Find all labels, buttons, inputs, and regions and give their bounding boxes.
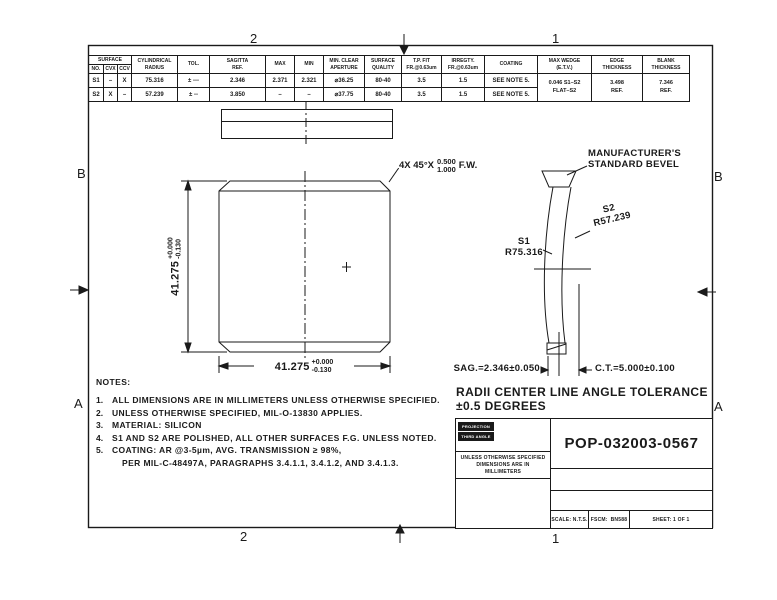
horizontal-dimension-text: 41.275 +0.000-0.130 (254, 359, 354, 374)
ct-dimension-text: C.T.=5.000±0.100 (595, 363, 675, 374)
col-header-radius: CYLINDRICALRADIUS (132, 56, 178, 74)
cell-sag-ref: 3.850 (210, 88, 266, 102)
cell-no: S1 (89, 74, 104, 88)
top-view (222, 101, 393, 147)
col-header-ccv: CCV (118, 65, 132, 74)
vertical-dimension-text: 41.275 +0.000-0.130 (168, 231, 183, 303)
col-header-quality: SURFACEQUALITY (365, 56, 402, 74)
col-header-edge-thickness: EDGETHICKNESS (592, 56, 643, 74)
title-block-empty-cell (455, 478, 551, 529)
col-group-surface: SURFACE (89, 56, 132, 65)
col-header-sagitta: SAGITTAREF. (210, 56, 266, 74)
uos-line: UNLESS OTHERWISE SPECIFIED (461, 455, 546, 462)
uos-cell: UNLESS OTHERWISE SPECIFIED DIMENSIONS AR… (455, 451, 551, 479)
cell-ccv: – (118, 88, 132, 102)
cell-tol: ± -- (178, 88, 210, 102)
front-view (219, 171, 390, 363)
surface-spec-table: SURFACE CYLINDRICALRADIUS TOL. SAGITTARE… (88, 55, 690, 102)
zone-label-bottom-1: 1 (552, 531, 559, 546)
cell-tp-fit: 3.5 (402, 74, 442, 88)
note-item-continuation: PER MIL-C-48497A, PARAGRAPHS 3.4.1.1, 3.… (96, 457, 441, 470)
sag-dimension-text: SAG.=2.346±0.050 (436, 363, 540, 374)
zone-arrow-left (70, 286, 88, 294)
note-item: 5. COATING: AR @3-5µm, AVG. TRANSMISSION… (96, 444, 441, 457)
notes-block: NOTES: 1. ALL DIMENSIONS ARE IN MILLIMET… (96, 377, 441, 469)
col-header-tol: TOL. (178, 56, 210, 74)
part-number-cell: POP-032003-0567 (550, 418, 713, 469)
fscm-cell: FSCM: BN588 (588, 510, 630, 529)
cell-max: – (266, 88, 295, 102)
cell-edge-thickness: 3.498REF. (592, 74, 643, 102)
col-header-no: NO. (89, 65, 104, 74)
cell-tol: ± --- (178, 74, 210, 88)
cell-quality: 80-40 (365, 88, 402, 102)
fscm-value: BN588 (611, 517, 628, 523)
sag-ct-arrows (541, 367, 592, 373)
engineering-drawing-sheet: 2 1 2 1 B A B A SURFACE CYLINDRICALRADIU… (0, 0, 777, 600)
bevel-label: MANUFACTURER'S STANDARD BEVEL (588, 148, 681, 170)
s2-leader (575, 231, 590, 238)
s1-leader (543, 250, 552, 254)
vertical-dimension (181, 181, 227, 352)
col-header-wedge: MAX WEDGE(E.T.V.) (538, 56, 592, 74)
note-item: 3. MATERIAL: SILICON (96, 419, 441, 432)
col-header-coating: COATING (485, 56, 538, 74)
col-header-max: MAX (266, 56, 295, 74)
zone-label-bottom-2: 2 (240, 529, 247, 544)
zone-label-top-2: 2 (250, 31, 257, 46)
zone-label-left-a: A (74, 396, 83, 411)
title-block-empty-row (550, 468, 713, 491)
cell-min: 2.321 (295, 74, 324, 88)
cell-max: 2.371 (266, 74, 295, 88)
uos-line: MILLIMETERS (485, 469, 521, 476)
cell-no: S2 (89, 88, 104, 102)
zone-label-left-b: B (77, 166, 86, 181)
cell-min: – (295, 88, 324, 102)
cell-coating: SEE NOTE 5. (485, 88, 538, 102)
cell-radius: 75.316 (132, 74, 178, 88)
chamfer-note: 4X 45°X 0.5001.000 F.W. (399, 158, 477, 174)
zone-label-right-a: A (714, 399, 723, 414)
scale-value: SCALE: N.T.S. (551, 517, 587, 523)
cell-coating: SEE NOTE 5. (485, 74, 538, 88)
uos-line: DIMENSIONS ARE IN (476, 462, 529, 469)
s1-radius-label: S1 R75.316 (504, 236, 544, 258)
col-header-irregularity: IRREGTY.FR.@0.63um (442, 56, 485, 74)
table-row-s1: S1 – X 75.316 ± --- 2.346 2.371 2.321 ⌀3… (89, 74, 690, 88)
zone-label-top-1: 1 (552, 31, 559, 46)
cell-irregularity: 1.5 (442, 74, 485, 88)
note-item: 1. ALL DIMENSIONS ARE IN MILLIMETERS UNL… (96, 394, 441, 407)
col-header-min: MIN (295, 56, 324, 74)
third-angle-chip: THIRD ANGLE (458, 432, 494, 441)
sheet-cell: SHEET: 1 OF 1 (629, 510, 713, 529)
cell-blank-thickness: 7.346REF. (643, 74, 690, 102)
zone-label-right-b: B (714, 169, 723, 184)
cell-ccv: X (118, 74, 132, 88)
fscm-label: FSCM: (591, 517, 608, 523)
cell-sag-ref: 2.346 (210, 74, 266, 88)
side-view (534, 171, 591, 376)
note-item: 2. UNLESS OTHERWISE SPECIFIED, MIL-O-138… (96, 407, 441, 420)
part-number: POP-032003-0567 (551, 419, 712, 468)
cell-irregularity: 1.5 (442, 88, 485, 102)
cell-aperture: ⌀37.75 (324, 88, 365, 102)
col-header-blank-thickness: BLANKTHICKNESS (643, 56, 690, 74)
cell-cvx: X (104, 88, 118, 102)
col-header-tp-fit: T.P. FITFR.@0.63um (402, 56, 442, 74)
col-header-cvx: CVX (104, 65, 118, 74)
cell-radius: 57.239 (132, 88, 178, 102)
cell-wedge: 0.046 S1–S2FLAT–S2 (538, 74, 592, 102)
scale-cell: SCALE: N.T.S. (550, 510, 589, 529)
title-block-empty-row (550, 490, 713, 511)
zone-arrow-top (400, 34, 408, 54)
cell-quality: 80-40 (365, 74, 402, 88)
note-item: 4. S1 AND S2 ARE POLISHED, ALL OTHER SUR… (96, 432, 441, 445)
cell-tp-fit: 3.5 (402, 88, 442, 102)
notes-title: NOTES: (96, 377, 441, 387)
col-header-aperture: MIN. CLEARAPERTURE (324, 56, 365, 74)
cell-cvx: – (104, 74, 118, 88)
radii-tolerance-note: RADII CENTER LINE ANGLE TOLERANCE ±0.5 D… (456, 385, 708, 413)
sheet-value: SHEET: 1 OF 1 (652, 517, 689, 523)
projection-chip: PROJECTION (458, 422, 494, 431)
zone-arrow-right (698, 288, 716, 296)
cell-aperture: ⌀36.25 (324, 74, 365, 88)
